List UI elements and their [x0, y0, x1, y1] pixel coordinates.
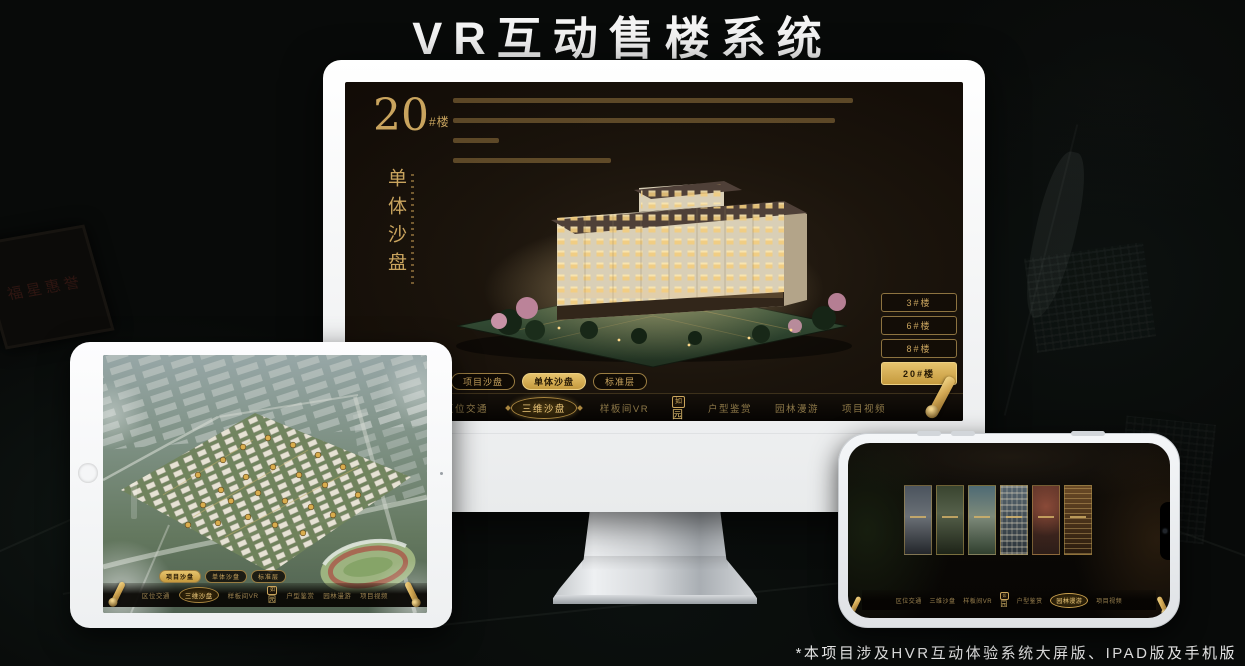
sandtable-sub-tabs: 项目沙盘 单体沙盘 标准层 — [451, 373, 647, 390]
building-hero-title: 20#楼 — [373, 94, 450, 138]
scroll-menu-icon-right[interactable] — [1156, 596, 1168, 614]
floor-button-6[interactable]: 6#楼 — [881, 316, 957, 335]
tablet-nav-floorplan[interactable]: 户型鉴赏 — [286, 590, 314, 600]
gallery-panel[interactable] — [968, 485, 996, 555]
floor-selector: 3#楼 6#楼 8#楼 20#楼 — [881, 293, 957, 385]
phone-nav-location[interactable]: 区位交通 — [896, 596, 922, 605]
tablet-nav-project-video[interactable]: 项目视频 — [360, 590, 388, 600]
tablet-home-button[interactable] — [78, 463, 98, 483]
tablet-sub-tabs: 项目沙盘 单体沙盘 标准层 — [159, 570, 286, 583]
gallery-panel[interactable] — [1000, 485, 1028, 555]
tablet-camera-dot — [440, 472, 443, 475]
tablet-frame: 项目沙盘 单体沙盘 标准层 区位交通 三维沙盘 样板间VR 如 园 户型鉴赏 园… — [70, 342, 452, 628]
phone-nav-showroom-vr[interactable]: 样板间VR — [963, 596, 992, 605]
phone-nav-3d-sandtable[interactable]: 三维沙盘 — [930, 596, 956, 605]
floor-button-3[interactable]: 3#楼 — [881, 293, 957, 312]
phone-camera-dot — [1163, 529, 1167, 533]
scroll-menu-icon-left[interactable] — [849, 596, 861, 614]
phone-frame: 区位交通 三维沙盘 样板间VR 如 园 户型鉴赏 园林漫游 项目视频 — [838, 433, 1180, 628]
logo-seal-icon: 如 — [672, 396, 685, 408]
tablet-nav-3d-sandtable[interactable]: 三维沙盘 — [179, 587, 219, 603]
phone-nav-floorplan[interactable]: 户型鉴赏 — [1017, 596, 1043, 605]
phone-nav-garden-roam[interactable]: 园林漫游 — [1050, 593, 1088, 608]
panorama-gallery — [904, 485, 1092, 555]
tablet-project-logo: 如 园 — [267, 586, 277, 604]
phone-volume-button — [917, 431, 941, 436]
gallery-panel[interactable] — [936, 485, 964, 555]
tablet-tab-standard-floor[interactable]: 标准层 — [251, 570, 286, 583]
gallery-panel[interactable] — [1032, 485, 1060, 555]
building-3d-render[interactable] — [439, 140, 869, 370]
footnote-text: *本项目涉及HVR互动体验系统大屏版、IPAD版及手机版 — [796, 642, 1237, 663]
nav-item-showroom-vr[interactable]: 样板间VR — [600, 401, 649, 415]
project-logo: 如 园 — [672, 396, 685, 420]
nav-item-garden-roam[interactable]: 园林漫游 — [775, 401, 819, 415]
phone-nav-project-video[interactable]: 项目视频 — [1096, 596, 1122, 605]
logo-name: 园 — [268, 596, 277, 604]
tablet-screen: 项目沙盘 单体沙盘 标准层 区位交通 三维沙盘 样板间VR 如 园 户型鉴赏 园… — [103, 355, 427, 613]
hero-floor-suffix: #楼 — [429, 113, 450, 130]
phone-navigation-bar: 区位交通 三维沙盘 样板间VR 如 园 户型鉴赏 园林漫游 项目视频 — [862, 590, 1156, 610]
tab-standard-floor[interactable]: 标准层 — [593, 373, 647, 390]
phone-project-logo: 如 园 — [1000, 592, 1009, 608]
hero-subtitle-vertical: 单体沙盘 — [383, 168, 410, 280]
logo-name: 园 — [672, 409, 685, 420]
logo-name: 园 — [1000, 601, 1008, 608]
gallery-panel[interactable] — [904, 485, 932, 555]
phone-volume-button — [951, 431, 975, 436]
logo-seal-icon: 如 — [267, 586, 277, 595]
tablet-tab-project-sandtable[interactable]: 项目沙盘 — [159, 570, 201, 583]
tab-project-sandtable[interactable]: 项目沙盘 — [451, 373, 515, 390]
background-building — [1024, 242, 1156, 353]
phone-power-button — [1071, 431, 1105, 436]
tablet-nav-showroom-vr[interactable]: 样板间VR — [228, 590, 259, 600]
nav-item-floorplan[interactable]: 户型鉴赏 — [708, 401, 752, 415]
floor-button-8[interactable]: 8#楼 — [881, 339, 957, 358]
plaque-text: 福星惠誉 — [4, 270, 85, 303]
tablet-tab-single-sandtable[interactable]: 单体沙盘 — [205, 570, 247, 583]
nav-item-project-video[interactable]: 项目视频 — [842, 401, 886, 415]
tablet-nav-garden-roam[interactable]: 园林漫游 — [323, 590, 351, 600]
phone-screen: 区位交通 三维沙盘 样板间VR 如 园 户型鉴赏 园林漫游 项目视频 — [848, 443, 1170, 618]
page-title: VR互动售楼系统 — [0, 2, 1245, 67]
tablet-nav-location[interactable]: 区位交通 — [142, 590, 170, 600]
tablet-navigation-bar: 区位交通 三维沙盘 样板间VR 如 园 户型鉴赏 园林漫游 项目视频 — [103, 583, 427, 607]
tab-single-sandtable[interactable]: 单体沙盘 — [522, 373, 586, 390]
gallery-panel[interactable] — [1064, 485, 1092, 555]
nav-item-3d-sandtable[interactable]: 三维沙盘 — [511, 397, 577, 419]
logo-seal-icon: 如 — [1000, 592, 1009, 600]
hero-floor-number: 20 — [373, 94, 429, 138]
hero-subtitle-caption-decoration — [411, 174, 414, 284]
